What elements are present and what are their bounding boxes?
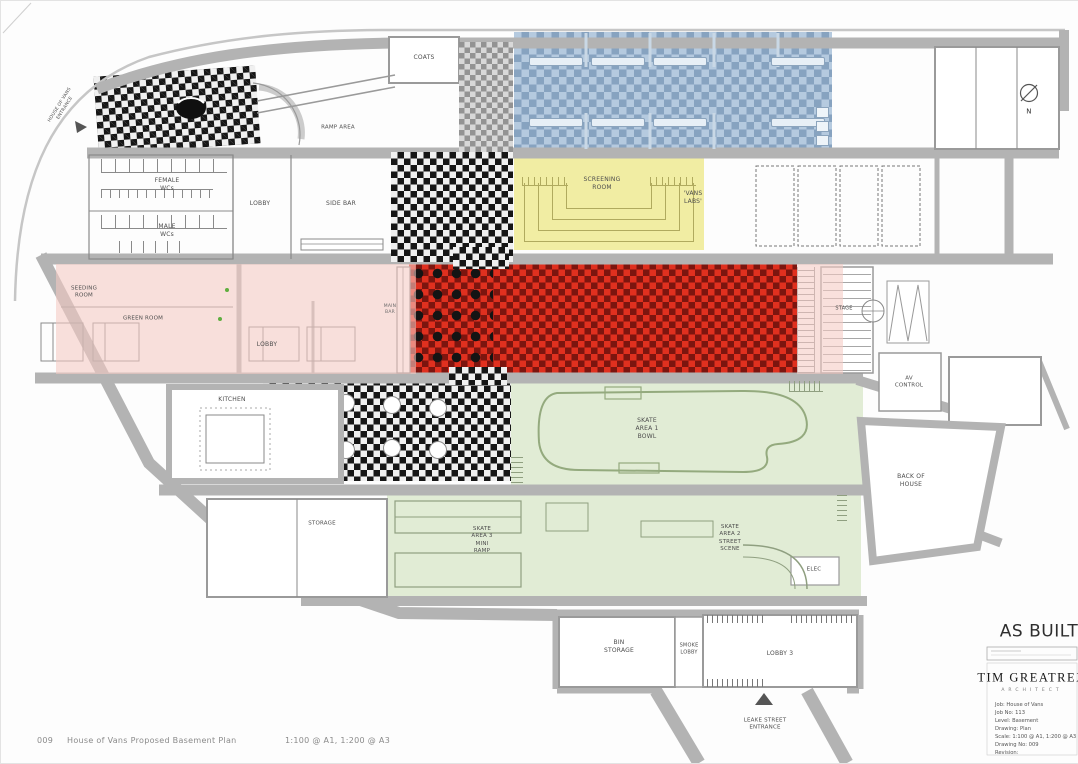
label-main-bar: MAIN BAR xyxy=(384,304,396,316)
page-corner-marks xyxy=(3,3,31,33)
bowl-stairs xyxy=(789,381,823,392)
lobby3-hatch xyxy=(791,615,855,623)
status-as-built: AS BUILT xyxy=(1000,621,1078,644)
hall-cabinet xyxy=(816,135,829,146)
footer-drawing-title: House of Vans Proposed Basement Plan xyxy=(67,736,237,745)
hall-table xyxy=(771,57,825,66)
zone-connector-lower xyxy=(449,367,507,385)
firm-name: TIM GREATREX xyxy=(977,670,1078,687)
zone-connector-upper xyxy=(453,247,509,269)
label-lobby: LOBBY xyxy=(250,200,270,208)
label-stage: STAGE xyxy=(835,306,852,313)
label-smoke-lobby: SMOKE LOBBY xyxy=(680,642,699,656)
label-bin-storage: BIN STORAGE xyxy=(604,639,634,655)
label-screening-room: SCREENING ROOM xyxy=(584,176,621,192)
label-north: N xyxy=(1026,107,1031,116)
label-male-wcs: MALE WCs xyxy=(158,223,175,239)
title-block-info: Job: House of Vans Job No: 113 Level: Ba… xyxy=(995,701,1077,757)
label-seeding-room: SEEDING ROOM xyxy=(71,286,97,301)
label-back-of-house: BACK OF HOUSE xyxy=(897,473,925,489)
footer-drawing-scale: 1:100 @ A1, 1:200 @ A3 xyxy=(285,736,390,745)
bowl-outline xyxy=(539,387,807,473)
info-job: Job: House of Vans xyxy=(995,701,1077,709)
label-leake-entrance: LEAKE STREET ENTRANCE xyxy=(744,718,787,733)
overlay-pink-stage xyxy=(797,264,843,374)
hall-table xyxy=(591,57,645,66)
label-lobby3: LOBBY 3 xyxy=(767,650,794,658)
lobby3-hatch xyxy=(707,679,765,687)
zone-lobby-checker xyxy=(391,152,513,262)
hall-cabinet xyxy=(816,107,829,118)
label-skate-area-1: SKATE AREA 1 BOWL xyxy=(635,417,658,441)
entrance-ramp-blob xyxy=(176,97,206,119)
green-room-plant xyxy=(218,317,222,321)
label-storage: STORAGE xyxy=(308,520,336,527)
info-revision: Revision: xyxy=(995,749,1077,757)
label-elec: ELEC xyxy=(807,566,822,573)
leake-entrance-arrow xyxy=(755,693,773,705)
lobby3-hatch xyxy=(707,615,765,623)
label-coats: COATS xyxy=(414,54,435,62)
hall-table xyxy=(529,118,583,127)
info-level: Level: Basement xyxy=(995,717,1077,725)
overlay-pink-backstage xyxy=(56,264,416,374)
info-drawing: Drawing: Plan xyxy=(995,725,1077,733)
floor-plan-page: COATS RAMP AREA HOUSE OF VANS ENTRANCE F… xyxy=(0,0,1078,764)
footer-drawing-number: 009 xyxy=(37,736,53,745)
hall-table xyxy=(653,57,707,66)
label-kitchen: KITCHEN xyxy=(218,396,245,404)
hall-table xyxy=(529,57,583,66)
label-skate-area-2: SKATE AREA 2 STREET SCENE xyxy=(719,524,741,554)
wc-urinals xyxy=(119,241,191,253)
label-green-room: GREEN ROOM xyxy=(123,315,163,322)
hall-table xyxy=(591,118,645,127)
label-vans-labs: 'VANS LABS' xyxy=(684,190,703,206)
label-side-bar: SIDE BAR xyxy=(326,200,356,208)
green-room-plant xyxy=(225,288,229,292)
hov-entrance-arrow xyxy=(75,121,87,133)
info-drawing-no: Drawing No: 009 xyxy=(995,741,1077,749)
vans-labs-stalls xyxy=(756,166,920,246)
firm-subtitle: ARCHITECT xyxy=(1001,688,1062,694)
label-lobby2: LOBBY xyxy=(257,341,277,349)
label-ramp-area: RAMP AREA xyxy=(321,124,355,131)
info-scale: Scale: 1:100 @ A1, 1:200 @ A3 xyxy=(995,733,1077,741)
street-steps xyxy=(837,495,847,521)
zone-ramp-connector xyxy=(459,42,513,154)
label-skate-area-3: SKATE AREA 3 MINI RAMP xyxy=(471,526,492,556)
info-job-no: Job No: 113 xyxy=(995,709,1077,717)
wc-fixtures-female xyxy=(101,159,227,173)
hall-table xyxy=(653,118,707,127)
bowl-steps-left xyxy=(511,453,523,483)
label-female-wcs: FEMALE WCs xyxy=(155,177,180,193)
label-av-control: AV CONTROL xyxy=(895,376,923,391)
hall-cabinet xyxy=(816,121,829,132)
